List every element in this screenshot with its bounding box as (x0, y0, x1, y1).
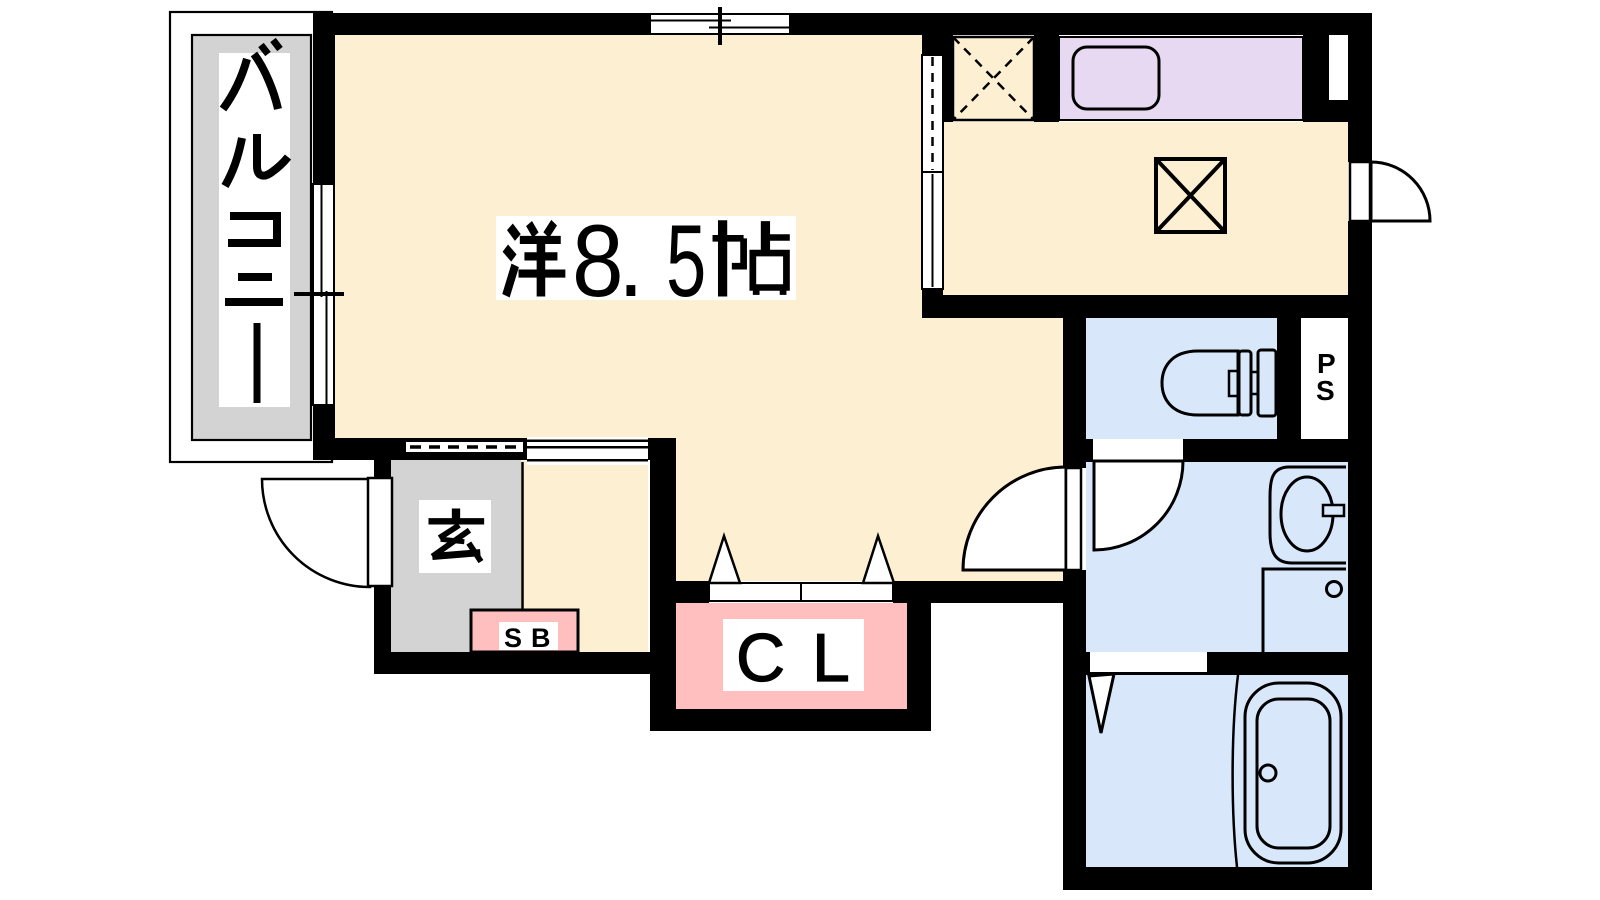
svg-text:C: C (736, 620, 785, 696)
svg-text:5: 5 (666, 204, 706, 318)
svg-text:L: L (812, 620, 850, 696)
svg-text:.: . (618, 204, 644, 318)
svg-text:S: S (1316, 375, 1335, 406)
svg-text:S: S (504, 623, 522, 653)
svg-text:B: B (531, 623, 551, 653)
svg-text:8: 8 (572, 204, 624, 318)
